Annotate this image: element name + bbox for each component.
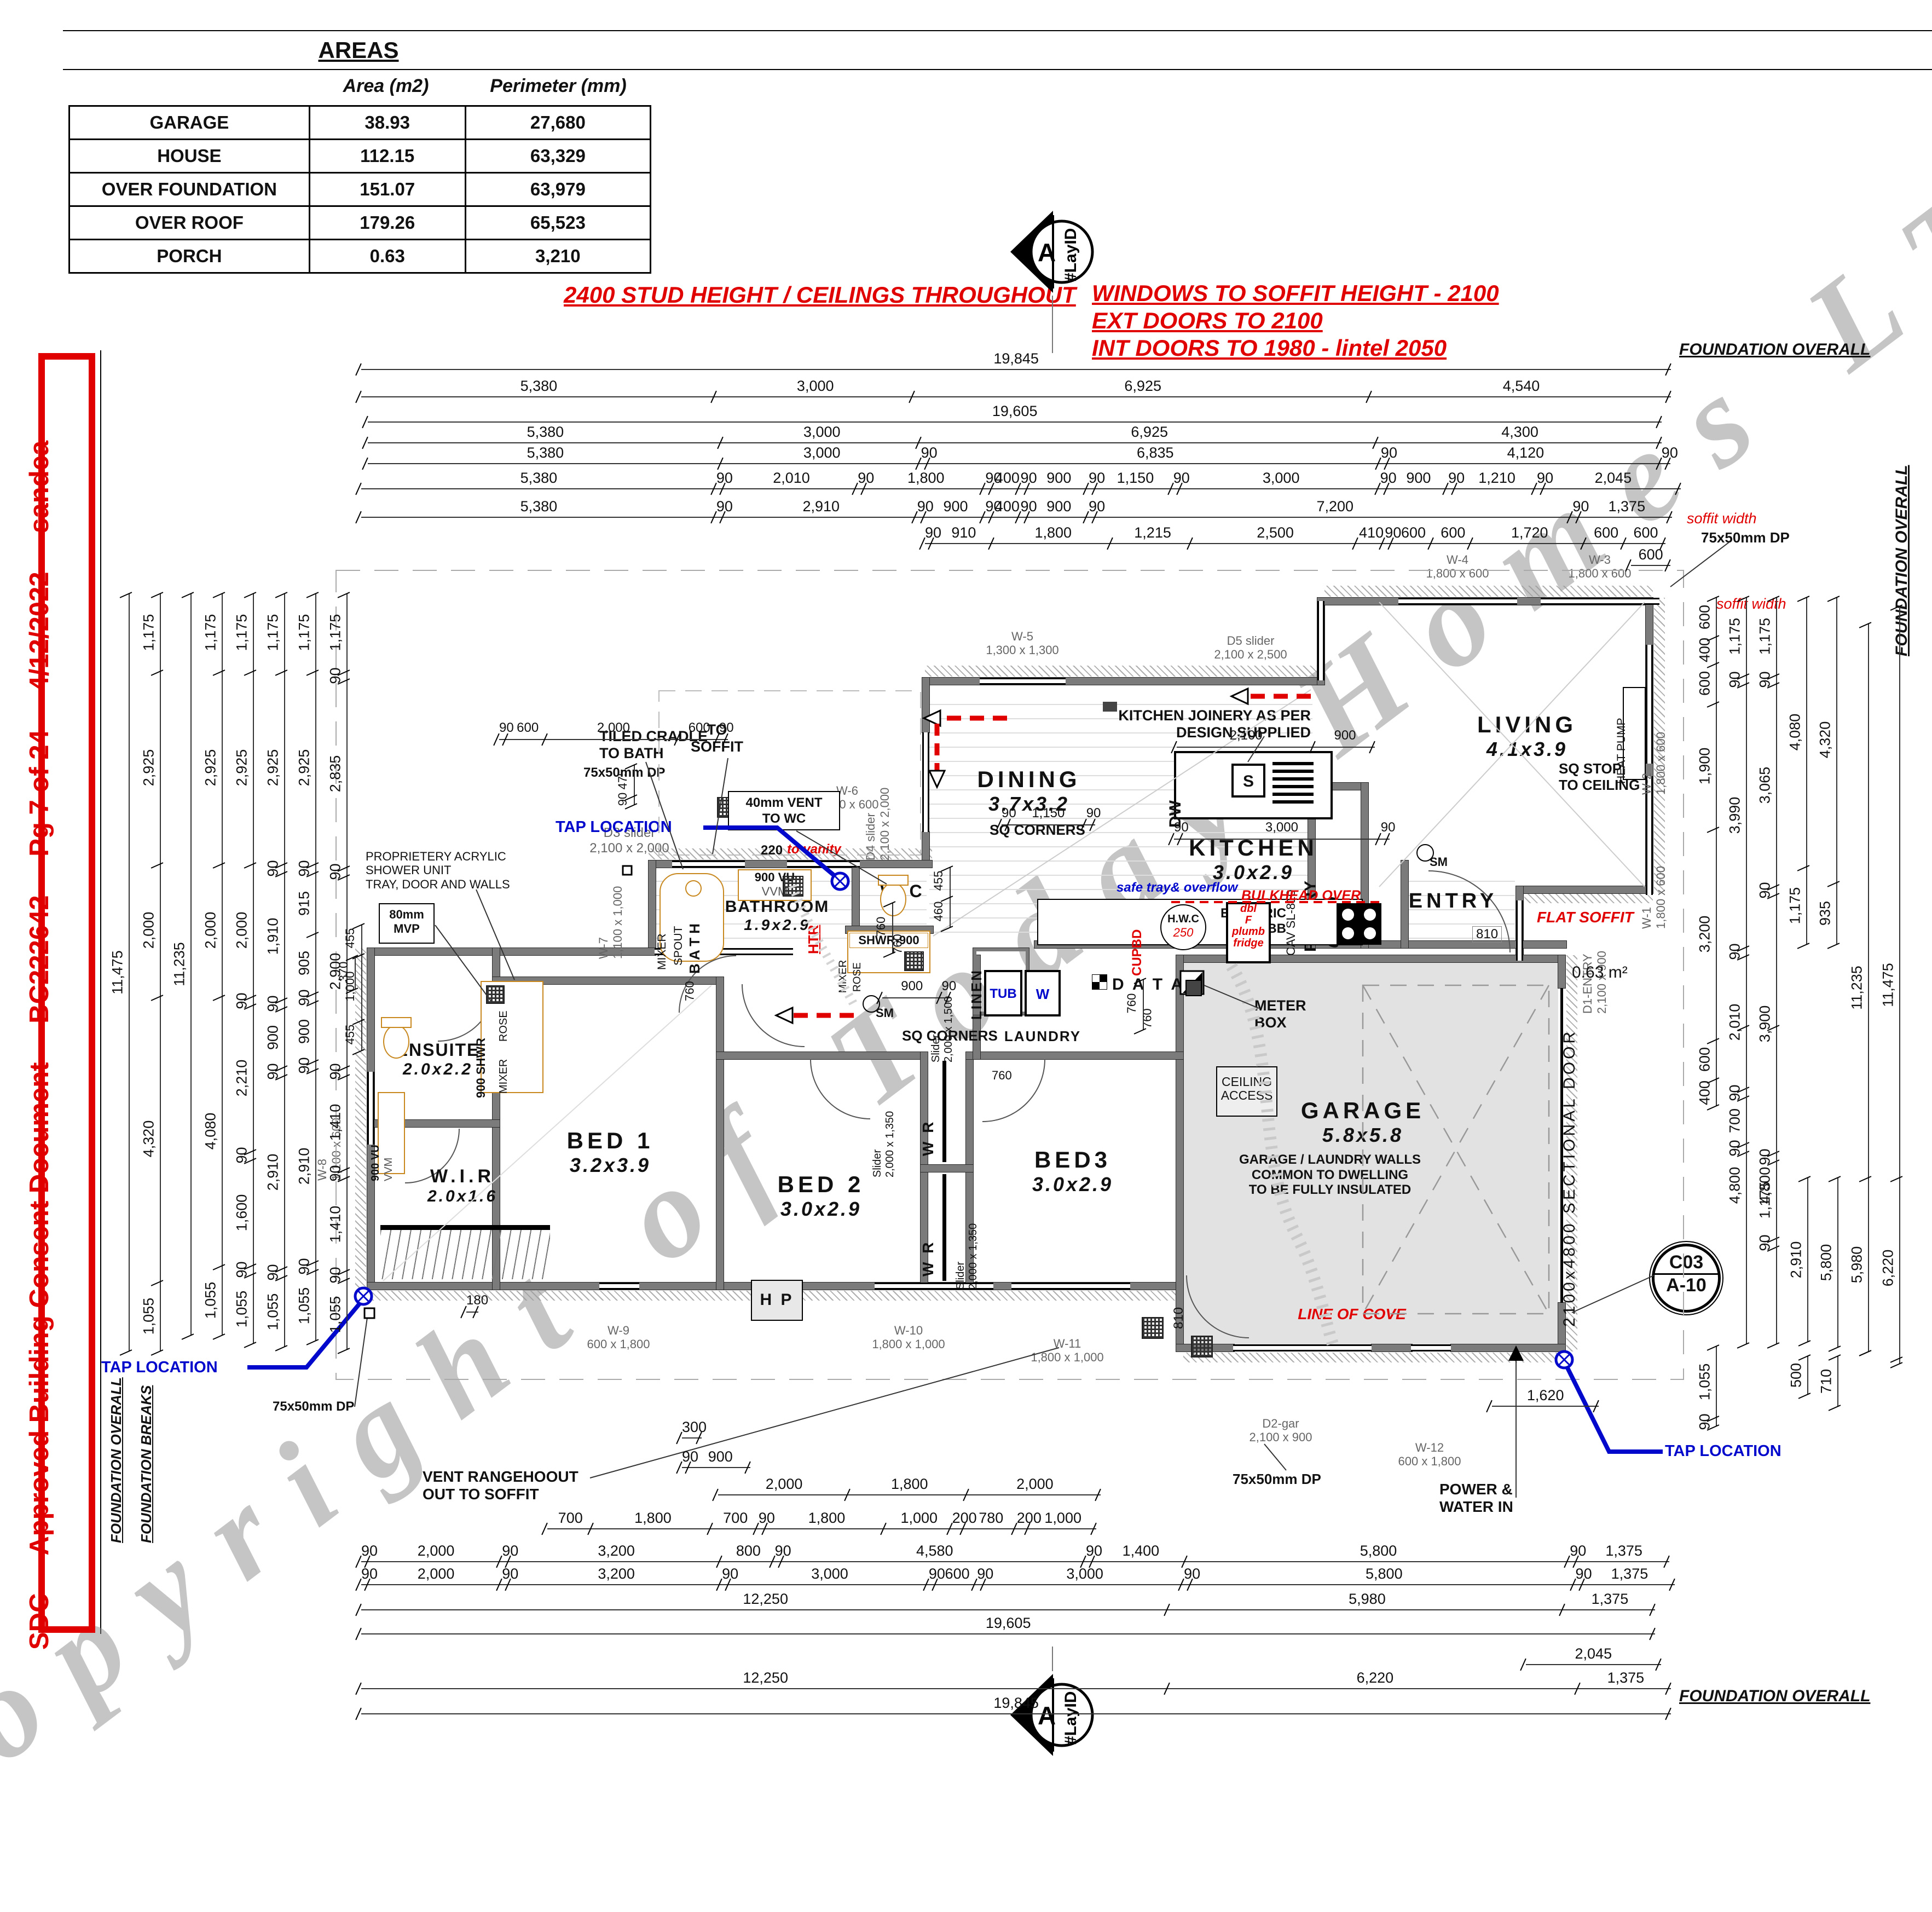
dimension-label: 600 (1631, 546, 1670, 563)
dimension-label: 3,200 (511, 1543, 722, 1559)
dimension-mark (222, 594, 223, 1336)
dimension-label: 3,000 (1183, 820, 1381, 835)
dimension-label: 900 (1315, 728, 1375, 743)
bath-mixer-label: MIXER (656, 933, 669, 970)
d1-label: D1-ENTRY 2,100 x 900 (1581, 951, 1609, 1014)
dimension-label: 19,845 (361, 1695, 1671, 1712)
dimension-mark (892, 903, 893, 954)
dimension-mark (1806, 598, 1807, 945)
laundry-washer: W (1025, 970, 1061, 1016)
dimension-label: 90 (1086, 806, 1095, 821)
dimension-label: 500 (1788, 1326, 1805, 1425)
dimension-label: 700 (547, 1510, 593, 1527)
room-bed2: BED 23.0x2.9 (778, 1171, 865, 1221)
dimension-label: 1,055 (296, 1257, 313, 1355)
ceiling-access-label: CEILING ACCESS (1221, 1075, 1273, 1103)
dimension-mark (120, 592, 132, 598)
dimension-label: 1,375 (1584, 1566, 1675, 1582)
dimension-label: 180 (466, 1293, 478, 1308)
dp-note-sw: 75x50mm DP (273, 1399, 354, 1414)
dimension-mark (160, 594, 161, 1351)
dimension-mark (244, 863, 257, 869)
dimension-label: 3,990 (1727, 766, 1744, 865)
dimension-label: 4,300 (1378, 424, 1662, 441)
dimension-mark (1177, 747, 1375, 748)
hp-unit: H P (751, 1280, 803, 1321)
dimension-mark (1143, 980, 1144, 1030)
bath-spout-dot (685, 880, 702, 897)
d2-label: D2-gar 2,100 x 900 (1250, 1417, 1312, 1445)
area-value: 0.63 (309, 240, 465, 273)
dimension-label: 4,540 (1372, 378, 1671, 395)
dimension-label: 900 (691, 1448, 750, 1465)
dimension-label: 4,800 (1757, 1136, 1774, 1235)
dimension-label: 2,925 (141, 719, 158, 817)
ensuite-toilet (383, 1025, 409, 1059)
area-value: 151.07 (309, 173, 465, 206)
dimension-label: 5,800 (1818, 1214, 1835, 1312)
dimension-label: 400 (994, 498, 1020, 515)
dimension-label: 4,320 (1817, 691, 1834, 789)
dimension-label: 760 (1125, 954, 1139, 1053)
dimension-mark (1837, 1178, 1838, 1348)
perimeter-value: 63,979 (465, 173, 650, 206)
window-w9 (599, 1283, 639, 1290)
dimension-mark (213, 995, 225, 1001)
dimension-label: 200 (1017, 1510, 1030, 1527)
sheet-border-inner (63, 69, 1932, 70)
dimension-label: 600 (1393, 524, 1433, 541)
table-row: GARAGE 38.93 27,680 (70, 106, 651, 140)
dimension-mark (925, 543, 1665, 544)
detail-marker: C03 A-10 (1652, 1244, 1721, 1313)
dimension-label: 2,910 (725, 498, 917, 515)
dimension-label: 800 (722, 1543, 774, 1559)
dimension-label: 1,175 (1787, 856, 1804, 955)
dimension-label: 1,215 (1113, 524, 1193, 541)
dimension-label: 410 (1358, 524, 1385, 541)
dimension-label: 1,900 (1697, 717, 1714, 815)
dimension-mark (1746, 1027, 1747, 1344)
sectional-door-label: 2100x4800 SECTIONAL DOOR (1560, 1029, 1579, 1327)
dimension-label: 1,150 (1097, 470, 1173, 487)
dimension-label: 11,235 (1849, 939, 1866, 1037)
w10-label: W-10 1,800 x 1,000 (872, 1324, 945, 1351)
safe-tray-note: safe tray& overflow (1117, 880, 1237, 896)
door-d1-entry (1516, 900, 1523, 961)
room-linen: LINEN (968, 969, 985, 1020)
dimension-label: 2,925 (234, 719, 251, 817)
dimension-label: 90 (1757, 630, 1774, 729)
sheet: { "areas_table": { "title": "AREAS", "he… (0, 0, 1932, 1767)
dimension-label: 2,910 (296, 1117, 313, 1215)
sheet-margin-line (100, 350, 101, 1634)
consent-text: SDC - Approved Building Consent Document… (24, 441, 55, 1650)
dimension-mark (1716, 1347, 1717, 1426)
dimension-label: 1,055 (265, 1262, 282, 1361)
dimension-label: 5,380 (368, 444, 723, 461)
dimension-mark (182, 592, 194, 598)
dimension-label: 710 (1818, 1332, 1835, 1431)
dimension-label: 5,800 (1187, 1543, 1570, 1559)
dimension-mark (718, 1494, 1101, 1495)
dimension-mark (1859, 1176, 1872, 1182)
dimension-label: 1,620 (1492, 1387, 1599, 1404)
foundation-overall-bottom: FOUNDATION OVERALL (1679, 1687, 1870, 1706)
dimension-label: 2,910 (1788, 1211, 1805, 1309)
table-row: HOUSE 112.15 63,329 (70, 140, 651, 173)
vent-wc-note: 40mm VENT TO WC (745, 795, 822, 827)
vent-grate-bathroom (783, 876, 803, 897)
area-value: 179.26 (309, 206, 465, 240)
dimension-label: 1,375 (1580, 1670, 1671, 1686)
dimension-label: 3,000 (1182, 470, 1380, 487)
hwc-label: H.W.C (1161, 913, 1205, 926)
dimension-label: 1,175 (141, 583, 158, 681)
dimension-label: 1,000 (1030, 1510, 1096, 1527)
dimension-label: 12,250 (361, 1670, 1170, 1686)
dimension-mark (361, 488, 1681, 489)
dimension-mark (361, 1584, 1675, 1585)
dimension-label: 1,175 (265, 583, 282, 681)
dimension-mark (1707, 827, 1720, 833)
to-vanity-dim: 220 (761, 843, 783, 858)
mvp-note: 80mm MVP (389, 908, 424, 937)
dimension-mark (361, 1633, 1655, 1634)
dp-note-bottom: 75x50mm DP (1233, 1471, 1321, 1488)
area-name: GARAGE (70, 106, 310, 140)
dimension-mark (361, 369, 1671, 370)
dimension-label: 12,250 (361, 1591, 1170, 1608)
dimension-label: 4,080 (203, 1082, 219, 1180)
dimension-mark (1798, 1176, 1811, 1182)
dimension-label: 5,980 (1849, 1216, 1866, 1314)
dimension-label: 700 (713, 1510, 759, 1527)
soffit-hatch-garage-south (1183, 1353, 1566, 1362)
dimension-label: 1,375 (1565, 1591, 1656, 1608)
perimeter-value: 63,329 (465, 140, 650, 173)
dimension-mark (1737, 1342, 1750, 1349)
fridge-label: dbl F plumb fridge (1232, 903, 1265, 949)
ensuite-mixer-label: MIXER (498, 1059, 510, 1094)
room-kitchen: KITCHEN3.0x2.9 (1189, 835, 1318, 884)
wr-rail-upper (942, 1061, 946, 1162)
dimension-label: 5,380 (361, 378, 716, 395)
svg-text:#LayID: #LayID (1062, 228, 1080, 282)
dimension-mark (1776, 1027, 1777, 1344)
dimension-label: 600 (680, 720, 719, 736)
dimension-label: 2,925 (296, 719, 313, 817)
wall-bed3-top (966, 1052, 1183, 1059)
dimension-label: 6,835 (930, 444, 1381, 461)
dimension-mark (361, 1609, 1655, 1610)
ceiling-access: CEILING ACCESS (1216, 1066, 1277, 1117)
porch-area-label: 0.63 m² (1572, 963, 1628, 983)
window-w8 (367, 1072, 374, 1145)
wall-garage-south-c (1451, 1344, 1565, 1351)
dimension-label: 900 (1389, 470, 1449, 487)
dimension-label: 11,475 (1880, 936, 1897, 1035)
dimension-label: 1,800 (866, 470, 985, 487)
area-name: OVER ROOF (70, 206, 310, 240)
foundation-overall-top: FOUNDATION OVERALL (1679, 340, 1870, 360)
dimension-label: 1,800 (994, 524, 1113, 541)
dimension-label: 2,000 (718, 1476, 850, 1493)
dimension-mark (1807, 1356, 1808, 1395)
dimension-mark (151, 995, 164, 1001)
dimension-label: 1,175 (203, 583, 219, 681)
marker-leader-top (1052, 296, 1053, 353)
dimension-label: 2,100 (1177, 728, 1315, 743)
dimension-mark (1002, 824, 1095, 825)
dimension-label: 4,120 (1390, 444, 1662, 461)
dp-note-ne: 75x50mm DP (1701, 530, 1790, 546)
dimension-mark (1492, 1406, 1599, 1407)
table-row: PORCH 0.63 3,210 (70, 240, 651, 273)
dimension-label: 935 (1817, 864, 1834, 963)
mvp-box: 80mm MVP (379, 903, 435, 944)
w12-label: W-12 600 x 1,800 (1398, 1441, 1461, 1469)
door-arc-bed1 (742, 984, 805, 1047)
d5-label: D5 slider 2,100 x 2,500 (1214, 634, 1287, 662)
ensuite-shwr-label: 900 SHWR (474, 1038, 488, 1098)
data-label: D A T A (1112, 975, 1185, 995)
hwc-circle: H.W.C 250 (1160, 904, 1206, 950)
note-windows-height: WINDOWS TO SOFFIT HEIGHT - 2100 (1092, 280, 1499, 307)
kitchen-sink: S (1231, 764, 1265, 798)
dimension-label: 11,235 (171, 915, 188, 1014)
wir-robe-hatch (380, 1230, 550, 1279)
dimension-label: 600 (508, 720, 547, 736)
perimeter-value: 27,680 (465, 106, 650, 140)
slider-1350-lower: Slider 2,000 x 1,350 (955, 1223, 980, 1290)
dimension-mark (361, 925, 362, 1051)
w5-label: W-5 1,300 x 1,300 (986, 629, 1058, 657)
tap-location-se: TAP LOCATION (1665, 1442, 1781, 1460)
table-row: OVER FOUNDATION 151.07 63,979 (70, 173, 651, 206)
dimension-label: 2,910 (265, 1123, 282, 1221)
bath-label: B A T H (686, 923, 703, 974)
dimension-mark (682, 1467, 750, 1468)
entry-door-810: 810 (1472, 926, 1502, 943)
dimension-mark (368, 442, 1662, 443)
detail-sheet: A-10 (1655, 1275, 1718, 1296)
dimension-mark (355, 957, 356, 990)
dimension-label: 1,375 (1581, 498, 1672, 515)
foundation-breaks-left: FOUNDATION BREAKS (138, 1385, 155, 1543)
dimension-label: 3,000 (723, 444, 921, 461)
dimension-label: 400 (1697, 1043, 1714, 1142)
dimension-label: 90 (327, 626, 344, 725)
shwr-900-label: SHWR-900 (849, 933, 928, 948)
washer-label: W (1036, 986, 1050, 1002)
dimension-label: 90 (1381, 820, 1390, 835)
garage-door-810: 810 (1171, 1307, 1187, 1329)
perimeter-value: 65,523 (465, 206, 650, 240)
window-w11 (1011, 1283, 1130, 1290)
room-bed3: BED33.0x2.9 (1032, 1147, 1113, 1196)
dimension-mark (1837, 1356, 1838, 1407)
sq-stop-note: SQ STOP TO CEILING (1559, 761, 1640, 794)
soffit-hatch-dining-top (925, 666, 1324, 677)
dimension-label: 3,000 (723, 424, 921, 441)
htr-label: HTR (805, 925, 822, 954)
dimension-mark (1797, 596, 1810, 602)
wall-bed2-top (716, 1052, 928, 1059)
wr-label-lower: W R (919, 1240, 937, 1276)
dimension-mark (1827, 596, 1840, 602)
areas-col-header-perimeter: Perimeter (mm) (465, 76, 651, 97)
dimension-label: 90 (942, 979, 951, 994)
svg-text:A: A (1038, 238, 1056, 267)
dimension-mark (151, 863, 164, 869)
electric-hob (1337, 903, 1381, 945)
dimension-label: 1,400 (1095, 1543, 1187, 1559)
wr-rail-lower (942, 1174, 946, 1281)
w3-label: W-3 1,800 x 600 (1569, 553, 1632, 581)
shower-grate (904, 951, 924, 971)
wall-garage-east-a (1558, 955, 1565, 988)
wall-wr-mid (921, 1165, 973, 1172)
vent-grate-bed3 (1191, 1336, 1213, 1358)
dimension-mark (1859, 622, 1872, 628)
marker-leader-bottom (1052, 1647, 1053, 1671)
dimension-label: 90 (1727, 630, 1744, 729)
w1-label: W-1 1,800 x 600 (1640, 866, 1668, 929)
dimension-label: 1,000 (886, 1510, 952, 1527)
dimension-mark (361, 1688, 1671, 1689)
dimension-label: 1,150 (1010, 806, 1086, 821)
ensuite-toilet-tank (381, 1017, 412, 1028)
dimension-label: 1,175 (296, 583, 313, 681)
wall-living-south (1516, 886, 1653, 893)
area-name: HOUSE (70, 140, 310, 173)
dimension-label: 910 (934, 524, 994, 541)
garage-walls-note: GARAGE / LAUNDRY WALLS COMMON TO DWELLIN… (1239, 1152, 1421, 1198)
note-ceiling-height: 2400 STUD HEIGHT / CEILINGS THROUGHOUT (564, 282, 1076, 308)
window-w4 (1398, 598, 1517, 605)
bulkhead-note: BULKHEAD OVER (1241, 888, 1361, 904)
table-row: OVER ROOF 179.26 65,523 (70, 206, 651, 240)
window-w12 (1411, 1344, 1451, 1351)
dimension-label: 19,605 (368, 403, 1662, 420)
door-d2-gar (1233, 1344, 1372, 1351)
w9-label: W-9 600 x 1,800 (587, 1324, 650, 1351)
dimension-label: 3,200 (1697, 885, 1714, 984)
shower-rose-label: ROSE (852, 962, 864, 992)
dimension-mark (1716, 598, 1717, 1106)
dimension-label: 1,800 (767, 1510, 886, 1527)
dimension-label: 4,080 (1787, 683, 1804, 782)
dimension-label: 1,720 (1473, 524, 1586, 541)
room-entry: ENTRY (1409, 889, 1497, 913)
dimension-label: 90 (296, 1016, 313, 1115)
shower-mixer-label: MIXER (837, 960, 849, 993)
shower-unit-note: PROPRIETERY ACRYLIC SHOWER UNIT TRAY, DO… (366, 850, 510, 891)
dimension-label: 400 (994, 470, 1020, 487)
sm-label-entry: SM (1430, 855, 1448, 869)
dimension-mark (368, 463, 1670, 464)
dimension-label: 2,000 (203, 881, 219, 980)
to-vanity-note: to vanity (787, 842, 841, 857)
hwc-capacity: 250 (1161, 926, 1205, 940)
flat-soffit-note: FLAT SOFFIT (1537, 909, 1634, 926)
ensuite-shower-grate (486, 985, 505, 1004)
sq-corners-hall: SQ CORNERS (902, 1028, 998, 1044)
tap-location-sw: TAP LOCATION (101, 1359, 218, 1377)
dimension-label: 2,835 (327, 724, 344, 823)
dimension-label: 460 (932, 862, 946, 961)
dimension-label: 4,800 (1727, 1136, 1744, 1235)
wall-entry-west (1401, 860, 1408, 948)
ensuite-vanity-900: 900 VU (369, 1145, 382, 1181)
w2-label: W-2 1,800 x 600 (1640, 732, 1668, 795)
dimension-label: 3,000 (731, 1566, 929, 1582)
ensuite-vanity-vvm: VVM (383, 1158, 395, 1181)
area-name: OVER FOUNDATION (70, 173, 310, 206)
room-living: LIVING4.1x3.9 (1477, 712, 1577, 761)
dimension-mark (1829, 1176, 1841, 1182)
wall-bathroom-west (649, 860, 656, 955)
dimension-mark (120, 1349, 132, 1356)
dimension-label: 1,800 (850, 1476, 969, 1493)
dimension-label: 90 (616, 750, 630, 848)
line-of-cove: LINE OF COVE (1298, 1306, 1406, 1323)
dimension-mark (1836, 598, 1837, 945)
dimension-label: 3,065 (1757, 736, 1774, 834)
dimension-label: 5,380 (368, 424, 723, 441)
dimension-mark (1526, 1664, 1661, 1665)
room-garage: GARAGE5.8x5.8 (1301, 1097, 1425, 1147)
dimension-label: 1,175 (234, 583, 251, 681)
areas-table: GARAGE 38.93 27,680 HOUSE 112.15 63,329 … (68, 105, 651, 274)
dimension-mark (1174, 839, 1390, 840)
dimension-mark (361, 1561, 1669, 1562)
dimension-label: 3,000 (716, 378, 915, 395)
power-water-note: POWER & WATER IN (1439, 1481, 1513, 1516)
dimension-label: 1,210 (1457, 470, 1537, 487)
dimension-label: 300 (682, 1419, 702, 1436)
dimension-label: 2,925 (265, 719, 282, 817)
dimension-label: 2,000 (370, 1566, 502, 1582)
tub-label: TUB (990, 986, 1016, 1001)
dimension-label: 760 (874, 877, 888, 976)
sm-label-hall: SM (876, 1006, 894, 1020)
wall-garage-west (1176, 955, 1183, 1351)
perimeter-value: 3,210 (465, 240, 650, 273)
wir-robe-rail (380, 1225, 550, 1230)
dimension-label: 1,055 (141, 1267, 158, 1366)
data-point-icon (1092, 974, 1107, 990)
dimension-label: 19,605 (361, 1615, 1655, 1632)
dimension-label: 2,045 (1546, 470, 1681, 487)
dimension-label: 5,980 (1170, 1591, 1564, 1608)
door-d4-slider (922, 732, 929, 832)
dimension-mark (1631, 565, 1670, 566)
dimension-label: 6,220 (1880, 1219, 1897, 1318)
dim-760-bed3: 760 (992, 1068, 1012, 1082)
sheet-border-top (63, 30, 1932, 31)
dimension-mark (190, 594, 192, 1336)
dimension-label: 1,055 (327, 1266, 344, 1364)
window-w7 (672, 860, 745, 868)
vent-range-note: VENT RANGEHOOUT OUT TO SOFFIT (423, 1468, 579, 1503)
door-d5-slider (1317, 601, 1324, 680)
dimension-label: 90 (327, 822, 344, 921)
wr-label-upper: W R (919, 1120, 937, 1156)
detail-code: C03 (1655, 1252, 1718, 1275)
dimension-mark (368, 421, 1662, 423)
